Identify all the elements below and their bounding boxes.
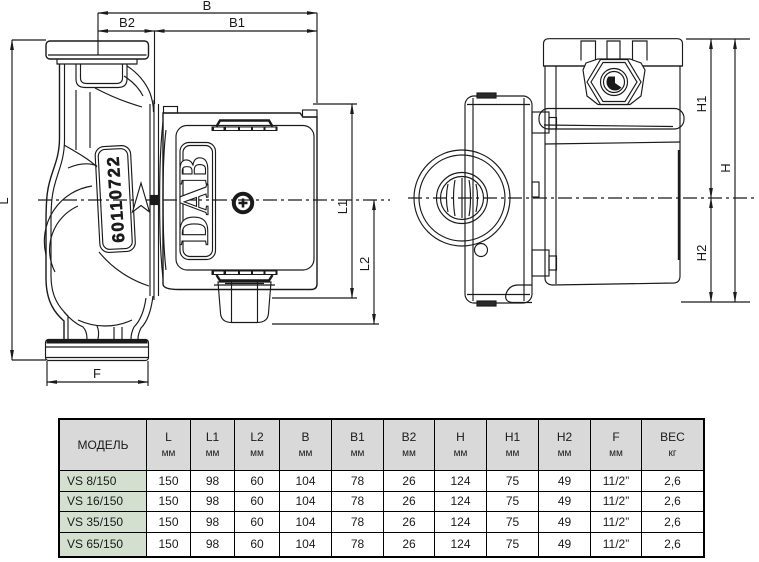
- svg-text:DAB: DAB: [172, 157, 218, 246]
- svg-text:H: H: [718, 163, 733, 172]
- svg-text:L2: L2: [357, 257, 372, 271]
- svg-text:H2: H2: [694, 245, 709, 262]
- svg-text:60110722: 60110722: [103, 155, 128, 244]
- svg-text:L: L: [0, 197, 11, 204]
- svg-text:H1: H1: [694, 96, 709, 113]
- svg-text:L1: L1: [335, 200, 350, 214]
- svg-text:B: B: [203, 0, 212, 13]
- svg-text:F: F: [93, 366, 101, 381]
- svg-text:B1: B1: [229, 15, 245, 30]
- svg-text:B2: B2: [119, 15, 135, 30]
